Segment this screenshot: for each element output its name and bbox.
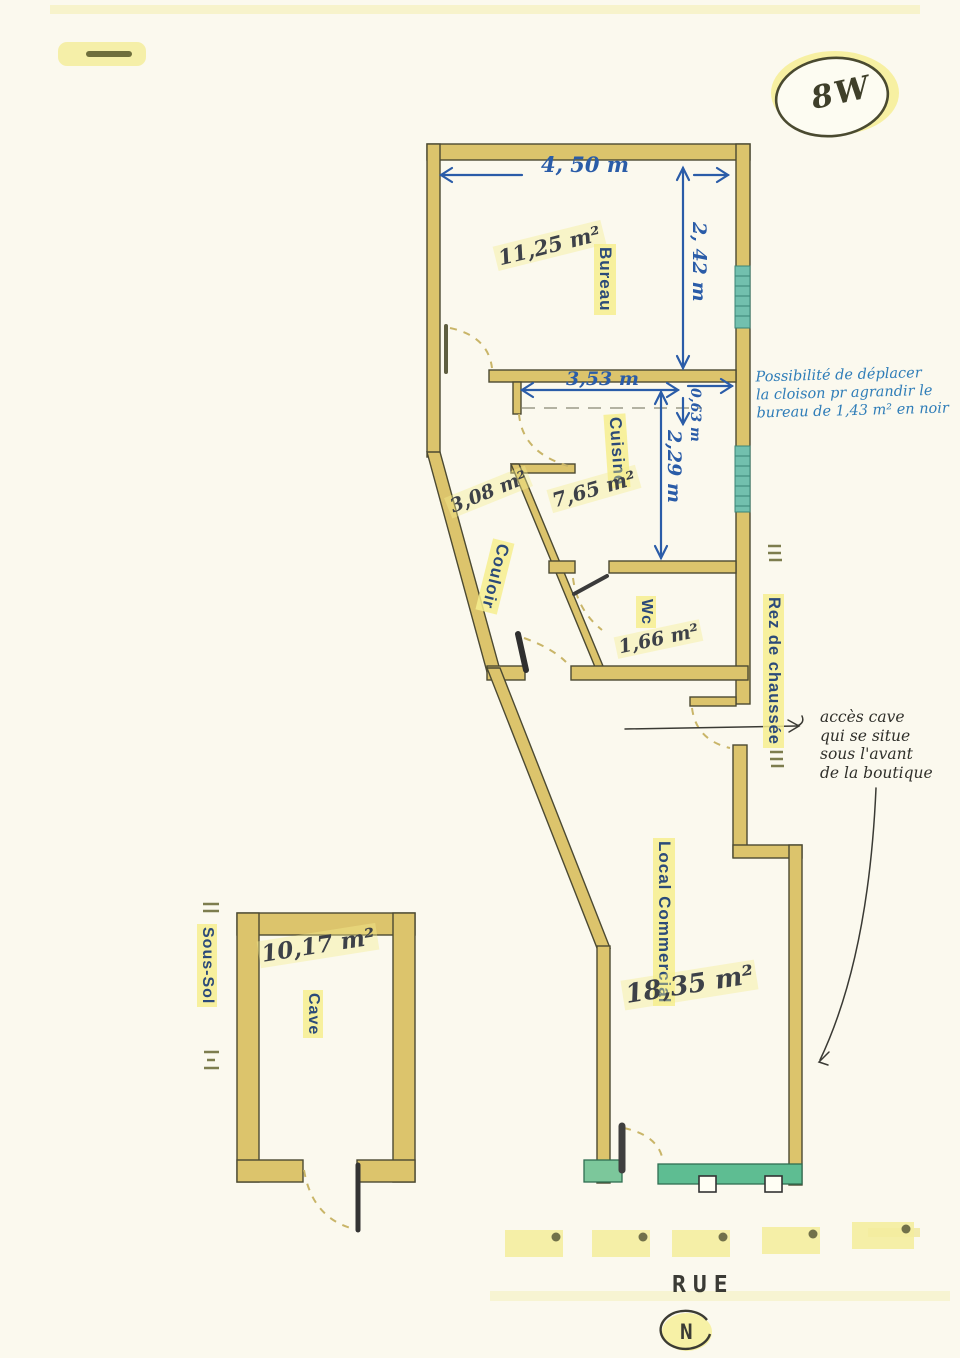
street-highlight-marks [505, 1222, 914, 1257]
dimension-cuisine-depth: 2,29 m [663, 430, 685, 503]
note-cave-access: accès cave qui se situe sous l'avant de … [820, 708, 933, 782]
north-label: N [680, 1320, 693, 1344]
floor-plan-drawing [0, 0, 960, 1358]
wall-cave-left [237, 913, 259, 1182]
wall-cave-bottom-left [237, 1160, 303, 1182]
room-label-bureau: Bureau [594, 244, 616, 315]
door-leaf-wc [574, 576, 607, 594]
door-arc-bureau [450, 328, 492, 368]
wall-unit-bottom-right [571, 666, 748, 680]
scanned-floor-plan-page: 8W Bureau Cuisine Couloir Wc Local Comme… [0, 0, 960, 1358]
note-cave-access-line-2: qui se situe [820, 727, 933, 746]
storefront [584, 1160, 802, 1192]
door-leaf-couloir [518, 634, 526, 670]
storefront-pillar-2 [765, 1176, 782, 1192]
window-bureau [735, 266, 750, 328]
wall-local-left [597, 946, 610, 1183]
wall-right-middle [733, 745, 747, 857]
wall-cave-bottom-right [357, 1160, 415, 1182]
storefront-pillar-1 [699, 1176, 716, 1192]
pointer-cave-access-curl [797, 716, 803, 726]
room-label-cave: Cave [303, 990, 323, 1038]
dimension-cuisine-width: 3,53 m [566, 368, 639, 390]
door-arc-cuisine [519, 414, 568, 466]
note-cave-access-line-4: de la boutique [820, 764, 933, 783]
wall-right-upper [736, 144, 750, 704]
wall-stub-cuisine [513, 382, 521, 414]
wall-wc-top-left [549, 561, 575, 573]
dimension-wall-offset: 0,63 m [687, 388, 703, 442]
note-cave-access-line-3: sous l'avant [820, 745, 933, 764]
ticks-below-rez [770, 752, 784, 766]
room-label-wc: Wc [636, 596, 656, 628]
ticks-below-sous-sol [204, 1052, 219, 1068]
wall-left [427, 144, 440, 457]
wall-wc-top-right [609, 561, 736, 573]
wall-cave-access-stub [690, 697, 736, 706]
scan-artifacts [50, 5, 950, 1301]
door-arc-couloir [524, 638, 566, 662]
door-arc-cave [304, 1170, 354, 1229]
wall-right-lower [789, 845, 802, 1185]
door-arc-storefront [624, 1128, 663, 1162]
pointer-cave-location-curve [820, 788, 876, 1060]
dimension-bureau-width: 4, 50 m [541, 152, 629, 177]
storefront-left-piece [584, 1160, 622, 1182]
dimension-bureau-depth: 2, 42 m [688, 222, 710, 302]
street-label: RUE [672, 1272, 735, 1298]
ticks-above-sous-sol [203, 904, 219, 911]
ticks-above-rez [768, 546, 782, 560]
note-cave-access-line-1: accès cave [820, 708, 933, 727]
wall-local-diagonal [487, 668, 610, 948]
wall-cave-right [393, 913, 415, 1182]
level-label-rez-de-chaussee: Rez de chaussée [763, 594, 784, 748]
level-label-sous-sol: Sous-Sol [197, 924, 217, 1007]
note-partition: Possibilité de déplacer la cloison pr ag… [755, 363, 949, 422]
